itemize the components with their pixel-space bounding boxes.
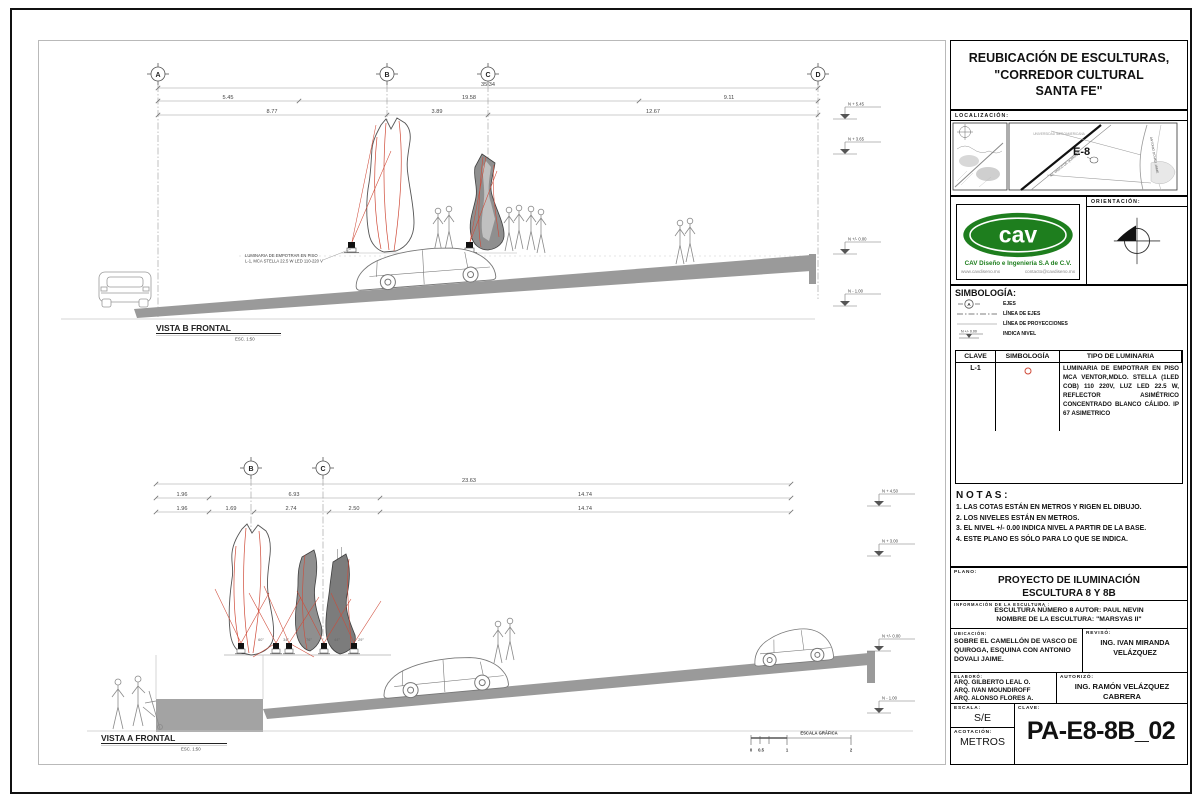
elevation-drawings: A B C D 35.34 5.45 19.58 9.11 8.77	[39, 41, 945, 764]
cav-logo-text: cav	[999, 221, 1038, 247]
symbol-label: EJES	[1003, 301, 1016, 307]
logo-section: cav CAV Diseño e Ingeniería S.A de C.V. …	[951, 197, 1187, 286]
company-website: www.cavdiseno.mx	[961, 269, 1000, 274]
angle-label: 34°	[283, 638, 289, 642]
luminaire-table: CLAVE SIMBOLOGÍA TIPO DE LUMINARIA L-1 L…	[955, 350, 1183, 484]
angle-label: 29°	[358, 638, 364, 642]
reviso-name: ING. IVAN MIRANDA VELÁZQUEZ	[1083, 638, 1187, 658]
nota-item: 3. EL NIVEL +/- 0.00 INDICA NIVEL A PART…	[951, 524, 1187, 535]
localizacion-label: LOCALIZACIÓN:	[951, 111, 1187, 121]
level-label: N + 5.45	[848, 102, 865, 107]
axis-line-icon	[957, 311, 997, 317]
reviso-cell: REVISÓ: ING. IVAN MIRANDA VELÁZQUEZ	[1083, 629, 1187, 672]
elaboro-cell: ELABORÓ: ARQ. GILBERTO LEAL O. ARQ. IVAN…	[951, 673, 1057, 703]
pedestal	[156, 655, 263, 732]
ubicacion-text: SOBRE EL CAMELLÓN DE VASCO DE QUIROGA, E…	[951, 636, 1082, 666]
dim: 5.45	[223, 95, 234, 101]
dim: 19.58	[462, 95, 476, 101]
dim-total: 23.63	[462, 478, 476, 484]
acotacion-value: METROS	[951, 735, 1014, 751]
axis-bubble-icon: A	[957, 299, 987, 309]
view-title: VISTA A FRONTAL	[101, 733, 175, 743]
sculpture-8b	[470, 154, 504, 250]
plano-title-line: PROYECTO DE ILUMINACIÓN	[951, 575, 1187, 588]
person	[444, 206, 454, 250]
symbol-row: A EJES	[951, 299, 1187, 309]
person	[112, 679, 124, 729]
autorizo-label: AUTORIZÓ:	[1057, 673, 1187, 680]
axis-label: B	[384, 72, 389, 79]
person	[505, 618, 515, 660]
sculpture-8-view-a	[229, 524, 273, 655]
dim: 3.89	[432, 109, 443, 115]
info-line: ESCULTURA NÚMERO 8 AUTOR: PAUL NEVIN	[951, 607, 1187, 616]
escala-value: S/E	[951, 711, 1014, 727]
level-texts-top: N + 5.45 N + 3.65 N +/- 0.00 N - 1.00	[848, 102, 867, 294]
dimension-rows	[154, 482, 793, 514]
axis-label: C	[320, 466, 325, 473]
level-marker	[867, 639, 915, 651]
nota-item: 2. LOS NIVELES ESTÁN EN METROS.	[951, 514, 1187, 525]
dimension-texts: 35.34 5.45 19.58 9.11 8.77 3.89 12.67	[223, 82, 735, 115]
table-header: TIPO DE LUMINARIA	[1060, 351, 1182, 363]
person	[536, 209, 546, 253]
escala-label: ESCALA:	[951, 704, 1014, 711]
view-b-frontal: A B C D 35.34 5.45 19.58 9.11 8.77	[61, 63, 881, 342]
scale-tick: 2	[850, 748, 853, 753]
title-block: REUBICACIÓN DE ESCULTURAS, "CORREDOR CUL…	[950, 40, 1188, 765]
scale-bar-label: ESCALA GRÁFICA	[800, 731, 837, 736]
table-cell-clave: L-1	[956, 363, 996, 431]
level-marker	[867, 494, 915, 506]
compass-icon	[1110, 211, 1164, 267]
plano-section: PLANO: PROYECTO DE ILUMINACIÓN ESCULTURA…	[951, 568, 1187, 601]
dim: 1.96	[177, 492, 188, 498]
ubicacion-cell: UBICACIÓN: SOBRE EL CAMELLÓN DE VASCO DE…	[951, 629, 1083, 672]
level-label: N - 1.00	[848, 289, 864, 294]
angle-label: 44°	[334, 638, 340, 642]
person	[514, 205, 524, 249]
acotacion-label: ACOTACIÓN:	[951, 728, 1014, 735]
angle-label: 76°	[306, 638, 312, 642]
escala-cell: ESCALA: S/E ACOTACIÓN: METROS	[951, 704, 1015, 764]
level-label: N +/- 0.00	[882, 634, 901, 639]
annotation-text: L-1, MCA STELLA 22.5 W LED 110-220 V	[245, 259, 323, 264]
dim: 1.69	[226, 506, 237, 512]
dimension-texts: 23.63 1.96 6.93 14.74 1.96 1.69 2.74 2.5…	[177, 478, 592, 512]
simbologia-label: SIMBOLOGÍA:	[951, 286, 1187, 299]
localizacion-section: LOCALIZACIÓN:	[951, 111, 1187, 197]
annotation-text: LUMINARIA DE EMPOTRAR EN PISO	[245, 253, 318, 258]
car-rear-view	[99, 272, 151, 307]
person	[504, 207, 514, 251]
sculpture-info-section: INFORMACIÓN DE LA ESCULTURA : ESCULTURA …	[951, 601, 1187, 629]
elaboro-name: ARQ. IVAN MOUNDIROFF	[951, 687, 1056, 695]
dim: 8.77	[267, 109, 278, 115]
cav-logo-icon: cav	[960, 211, 1076, 259]
level-label: N - 1.00	[882, 696, 898, 701]
elaboro-row: ELABORÓ: ARQ. GILBERTO LEAL O. ARQ. IVAN…	[951, 673, 1187, 704]
dim: 14.74	[578, 506, 592, 512]
reviso-label: REVISÓ:	[1083, 629, 1187, 636]
symbol-label: LÍNEA DE PROYECCIONES	[1003, 321, 1068, 327]
level-texts-bottom: N + 4.50 N + 3.00 N +/- 0.00 N - 1.00	[882, 489, 901, 701]
location-map: UNIVERSIDAD IBEROAMERICANA E-8 AV. VASCO…	[951, 121, 1184, 193]
scale-tick: 0	[750, 748, 753, 753]
company-name: CAV Diseño e Ingeniería S.A de C.V.	[965, 260, 1072, 267]
view-scale: ESC. 1:50	[235, 337, 255, 342]
luminaire-symbol-icon	[1022, 365, 1034, 377]
level-label: N + 4.50	[882, 489, 899, 494]
dim: 2.74	[286, 506, 297, 512]
clave-value: PA-E8-8B_02	[1015, 717, 1187, 746]
table-cell-descripcion: LUMINARIA DE EMPOTRAR EN PISO MCA VENTOR…	[1060, 363, 1182, 431]
view-scale: ESC. 1:50	[181, 747, 201, 752]
orientation-cell: ORIENTACIÓN:	[1086, 197, 1187, 284]
graphic-scale-bar: ESCALA GRÁFICA 0 0.5 1 2	[750, 731, 853, 753]
notas-label: N O T A S :	[951, 486, 1187, 503]
person	[132, 676, 145, 726]
clave-cell: CLAVE: PA-E8-8B_02	[1015, 704, 1187, 764]
ubicacion-row: UBICACIÓN: SOBRE EL CAMELLÓN DE VASCO DE…	[951, 629, 1187, 673]
axis-label: A	[155, 72, 160, 79]
level-marker	[867, 544, 915, 556]
view-title: VISTA B FRONTAL	[156, 323, 231, 333]
level-marker	[833, 294, 881, 306]
nota-item: 4. ESTE PLANO ES SÓLO PARA LO QUE SE IND…	[951, 535, 1187, 546]
orientacion-label: ORIENTACIÓN:	[1087, 197, 1187, 207]
drawing-area: A B C D 35.34 5.45 19.58 9.11 8.77	[38, 40, 946, 765]
blueprint-sheet: A B C D 35.34 5.45 19.58 9.11 8.77	[0, 0, 1200, 800]
plano-title-line: ESCULTURA 8 Y 8B	[951, 588, 1187, 601]
axis-label: B	[248, 466, 253, 473]
clave-label: CLAVE:	[1015, 704, 1187, 711]
view-a-frontal: B C 23.63 1.96 6.93 14.74 1.96 1.69 2.74	[87, 457, 915, 753]
axis-label: D	[815, 72, 820, 79]
company-logo: cav CAV Diseño e Ingeniería S.A de C.V. …	[956, 204, 1080, 280]
level-label: N + 3.00	[882, 539, 899, 544]
axis-label: C	[485, 72, 490, 79]
autorizo-name: ING. RAMÓN VELÁZQUEZ CABRERA	[1057, 682, 1187, 703]
scale-tick: 0.5	[758, 748, 764, 753]
dim: 2.50	[349, 506, 360, 512]
dim-total: 35.34	[481, 82, 495, 88]
scale-tick: 1	[786, 748, 789, 753]
level-marker	[833, 142, 881, 154]
sculpture-8	[367, 118, 414, 252]
symbol-row: LÍNEA DE EJES	[951, 309, 1187, 319]
project-title: REUBICACIÓN DE ESCULTURAS, "CORREDOR CUL…	[951, 41, 1187, 111]
info-line: NOMBRE DE LA ESCULTURA: "MARSYAS II"	[951, 616, 1187, 625]
dim: 1.96	[177, 506, 188, 512]
view-b-title: VISTA B FRONTAL ESC. 1:50	[156, 323, 281, 342]
luminaire-table-section: CLAVE SIMBOLOGÍA TIPO DE LUMINARIA L-1 L…	[951, 346, 1187, 486]
autorizo-cell: AUTORIZÓ: ING. RAMÓN VELÁZQUEZ CABRERA	[1057, 673, 1187, 703]
dim: 12.67	[646, 109, 660, 115]
plano-label: PLANO:	[951, 568, 1187, 575]
level-marker	[833, 242, 881, 254]
dim: 6.93	[289, 492, 300, 498]
person	[675, 220, 685, 264]
project-title-line: REUBICACIÓN DE ESCULTURAS,	[951, 50, 1187, 67]
sculpture-8b-view-a	[295, 547, 355, 654]
luminaire-l1	[318, 643, 330, 654]
elaboro-name: ARQ. ALONSO FLORES A.	[951, 695, 1056, 703]
dim: 9.11	[724, 95, 734, 101]
nota-item: 1. LAS COTAS ESTÁN EN METROS Y RIGEN EL …	[951, 503, 1187, 514]
project-title-line: "CORREDOR CULTURAL	[951, 67, 1187, 84]
angle-label: 60°	[258, 638, 264, 642]
symbol-row: N +/- 0.00 INDICA NIVEL	[951, 329, 1187, 339]
map-area-label: UNIVERSIDAD IBEROAMERICANA	[1033, 132, 1085, 136]
company-email: contacto@cavdiseno.mx	[1025, 269, 1075, 274]
projection-line-icon	[957, 321, 997, 327]
simbologia-section: SIMBOLOGÍA: A EJES	[951, 286, 1187, 346]
elaboro-name: ARQ. GILBERTO LEAL O.	[951, 679, 1056, 687]
ubicacion-label: UBICACIÓN:	[951, 629, 1082, 636]
level-marker	[833, 107, 881, 119]
table-header: SIMBOLOGÍA	[996, 351, 1060, 363]
svg-text:A: A	[967, 302, 971, 307]
person	[526, 206, 536, 250]
level-marker	[867, 701, 915, 713]
person	[433, 208, 443, 252]
table-cell-symbol	[996, 363, 1060, 431]
svg-text:N +/- 0.00: N +/- 0.00	[961, 329, 977, 333]
luminaire-l1	[270, 643, 282, 654]
symbol-label: INDICA NIVEL	[1003, 331, 1036, 337]
view-a-title: VISTA A FRONTAL ESC. 1:50	[101, 733, 227, 752]
level-label: N +/- 0.00	[848, 237, 867, 242]
notas-section: N O T A S : 1. LAS COTAS ESTÁN EN METROS…	[951, 486, 1187, 568]
symbol-label: LÍNEA DE EJES	[1003, 311, 1040, 317]
dim: 14.74	[578, 492, 592, 498]
luminaire-l1	[283, 643, 295, 654]
person	[493, 621, 503, 663]
escala-clave-row: ESCALA: S/E ACOTACIÓN: METROS CLAVE: PA-…	[951, 704, 1187, 764]
table-header: CLAVE	[956, 351, 996, 363]
project-title-line: SANTA FE"	[951, 83, 1187, 100]
level-mark-icon: N +/- 0.00	[957, 328, 999, 341]
level-label: N + 3.65	[848, 137, 865, 142]
person	[685, 218, 695, 262]
